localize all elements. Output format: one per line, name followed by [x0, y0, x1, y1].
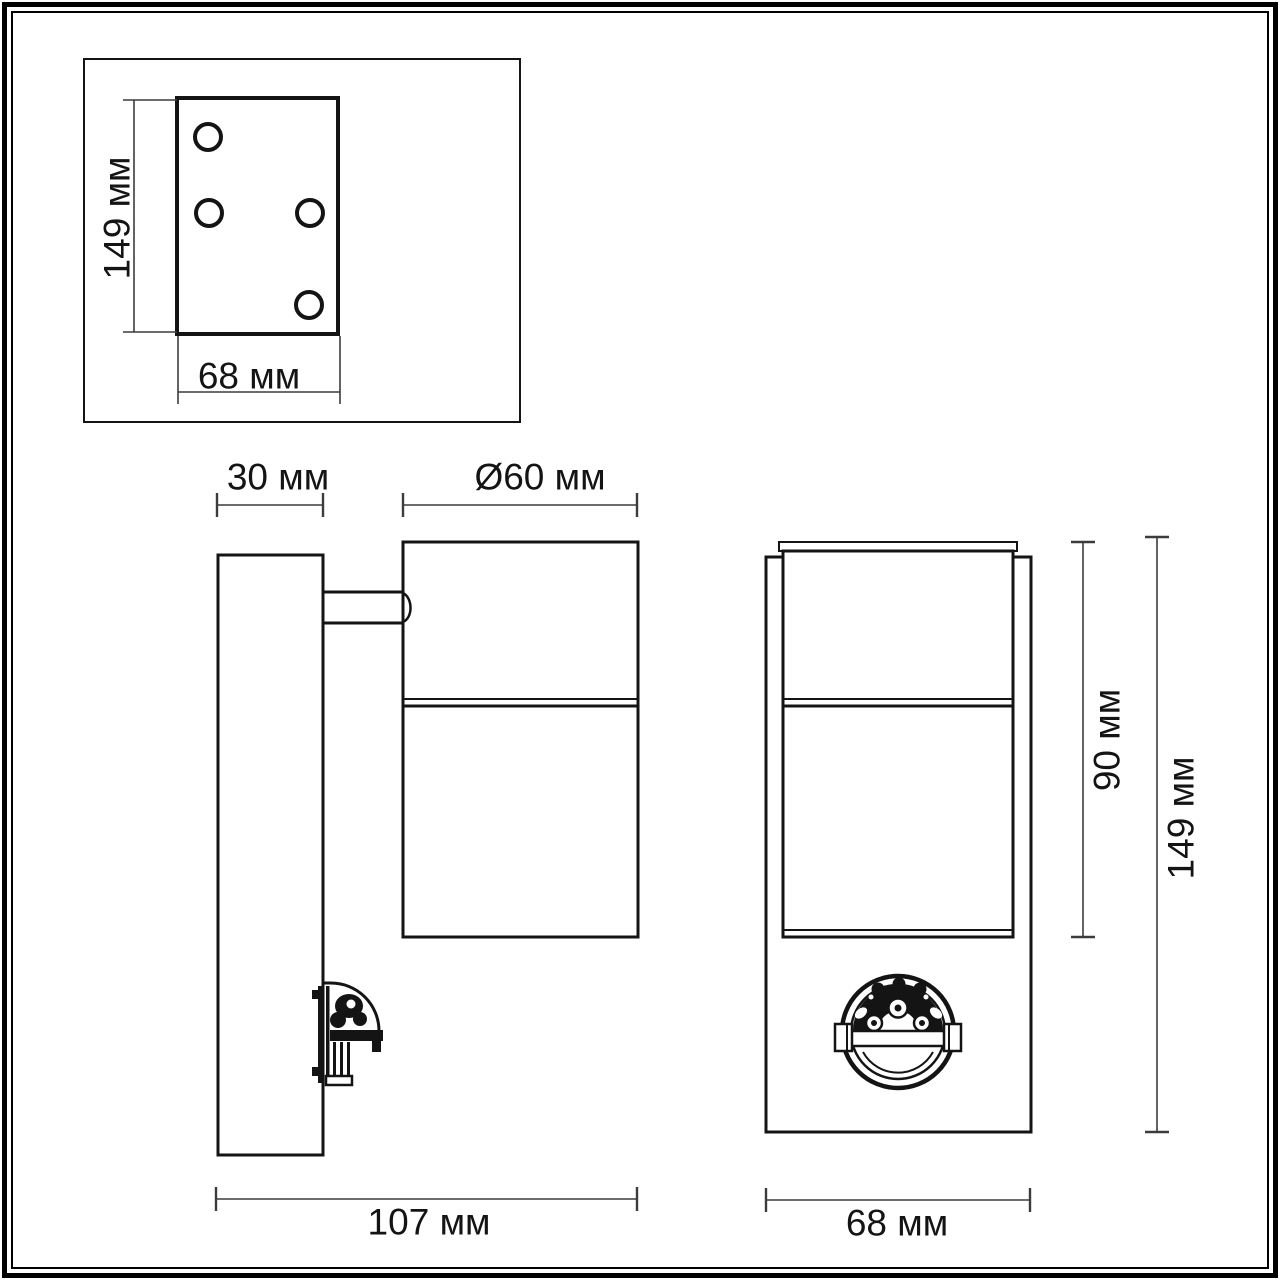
wall-plate-side [218, 555, 323, 1155]
sensor-clamp-right [944, 1024, 961, 1051]
dim-label-lamp-height: 90 мм [1089, 689, 1126, 791]
plate-hole [296, 292, 322, 318]
dim-label-wall-plate-depth: 30 мм [227, 459, 329, 496]
wall-light-technical-drawing [0, 0, 1280, 1280]
plate-hole [195, 124, 221, 150]
plate-hole [297, 200, 323, 226]
dim-label-plate-width: 68 мм [198, 358, 300, 395]
sensor-band [850, 1031, 946, 1046]
dim-label-plate-height: 149 мм [99, 157, 136, 280]
front-view [766, 537, 1169, 1212]
sensor-clamp-left [835, 1024, 852, 1051]
dim-label-front-width: 68 мм [846, 1205, 948, 1242]
mounting-arm [323, 592, 411, 623]
lamp-body-side [403, 542, 638, 937]
side-view [216, 493, 638, 1211]
dim-label-diameter: Ø60 мм [474, 459, 605, 496]
dimensional-drawing-page: 149 мм 68 мм 30 мм Ø60 мм 107 мм 90 мм 1… [0, 0, 1280, 1280]
dim-label-overall-height: 149 мм [1163, 757, 1200, 880]
plate-hole [196, 200, 222, 226]
dim-label-overall-depth: 107 мм [368, 1204, 491, 1241]
lamp-body-front [783, 551, 1013, 937]
mounting-plate-view [84, 59, 520, 422]
